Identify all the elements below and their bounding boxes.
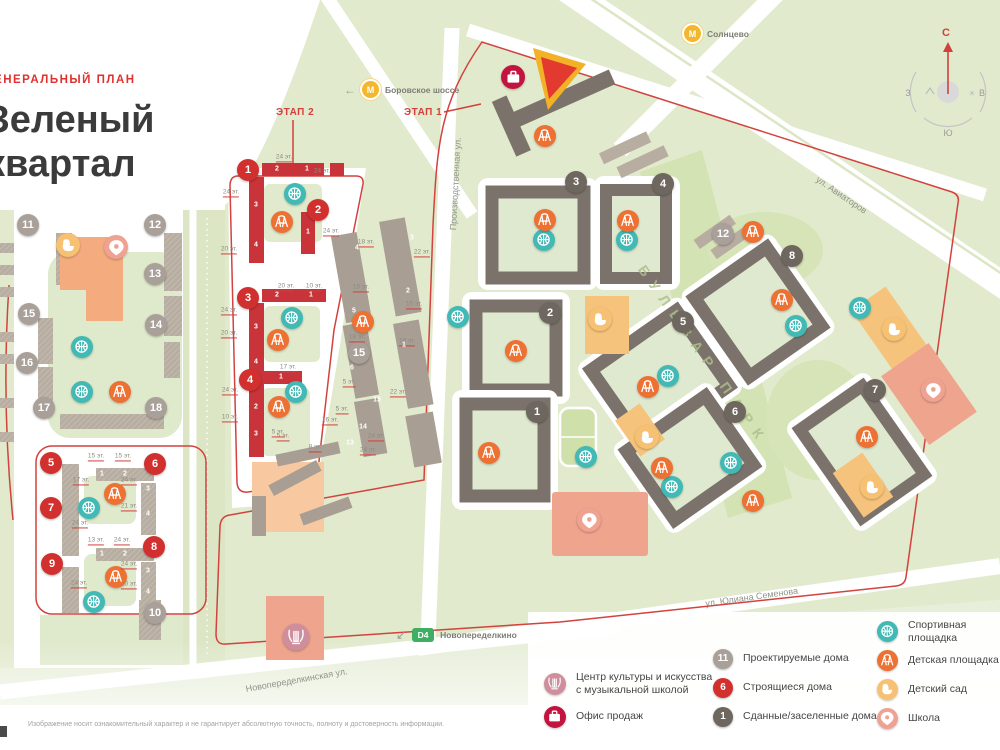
corps-number: 1	[57, 478, 61, 485]
play-icon[interactable]	[109, 381, 131, 403]
corps-number: 5	[352, 308, 356, 315]
legend-item: Центр культуры и искусства с музыкальной…	[544, 666, 712, 702]
play-icon[interactable]	[771, 289, 793, 311]
floor-label: 24 эт.	[360, 446, 376, 455]
building-badge-12[interactable]: 12	[144, 214, 166, 236]
d4-label: Новопеределкино	[440, 630, 517, 640]
legend-item: Детский сад	[877, 675, 1000, 704]
school-icon[interactable]	[921, 378, 945, 402]
floor-label: 5 эт.	[272, 428, 285, 437]
play-icon[interactable]	[856, 426, 878, 448]
legend-column-2: 11Проектируемые дома6Строящиеся дома1Сда…	[713, 644, 877, 731]
sport-icon	[877, 621, 898, 642]
corps-number: 2	[254, 404, 258, 411]
kinder-icon[interactable]	[882, 317, 906, 341]
floor-label: 5 эт.	[336, 405, 349, 414]
building-badge-6[interactable]: 6	[144, 453, 166, 475]
building-badge-7[interactable]: 7	[40, 497, 62, 519]
play-icon[interactable]	[478, 442, 500, 464]
metro-icon: М	[684, 25, 701, 42]
sport-icon[interactable]	[785, 315, 807, 337]
floor-label: 5 эт.	[343, 378, 356, 387]
sport-icon[interactable]	[616, 229, 638, 251]
corps-number: 1	[100, 551, 104, 558]
floor-label: 24 эт.	[114, 536, 130, 545]
building-badge-12[interactable]: 12	[712, 223, 734, 245]
sport-icon[interactable]	[78, 497, 100, 519]
corps-number: 6	[350, 365, 354, 372]
legend-column-3: Спортивная площадкаДетская площадкаДетск…	[877, 617, 1000, 733]
map-strip-trees	[183, 210, 225, 668]
arrow-left-icon: ←	[344, 84, 356, 96]
floor-label: 24 эт.	[368, 432, 384, 441]
building-badge-5[interactable]: 5	[672, 311, 694, 333]
building-badge-15[interactable]: 15	[348, 342, 370, 364]
floor-label: 17 эт.	[73, 476, 89, 485]
floor-label: 24 эт.	[71, 579, 87, 588]
floor-label: 24 эт.	[276, 153, 292, 162]
kinder-icon[interactable]	[588, 307, 612, 331]
metro-borovskoe-label: Боровское шоссе	[385, 85, 459, 95]
legend-label: Детский сад	[908, 683, 967, 696]
stage1-label: ЭТАП 1	[404, 107, 442, 118]
metro-borovskoe[interactable]: ← М Боровское шоссе	[344, 81, 459, 98]
corps-number: 3	[254, 431, 258, 438]
building-badge-2[interactable]: 2	[539, 302, 561, 324]
legend-label: Проектируемые дома	[743, 652, 849, 665]
floor-label: 24 эт.	[314, 167, 330, 176]
kinder-icon[interactable]	[860, 475, 884, 499]
play-icon[interactable]	[651, 457, 673, 479]
play-icon[interactable]	[742, 221, 764, 243]
sport-icon[interactable]	[71, 381, 93, 403]
legend-item: 11Проектируемые дома	[713, 644, 877, 673]
legend-item: Детская площадка	[877, 646, 1000, 675]
legend-item: 1Сданные/заселенные дома	[713, 702, 877, 731]
floor-label: 20 эт.	[221, 329, 237, 338]
corps-number: 2	[275, 166, 279, 173]
legend-item: Школа	[877, 704, 1000, 733]
floor-label: 22 эт.	[414, 248, 430, 257]
building-badge-8[interactable]: 8	[143, 536, 165, 558]
sport-icon[interactable]	[661, 476, 683, 498]
legend-badge-1: 1	[713, 707, 733, 727]
play-icon[interactable]	[617, 210, 639, 232]
corps-number: 1	[306, 229, 310, 236]
floor-label: 24 эт.	[223, 188, 239, 197]
sport-icon[interactable]	[285, 381, 307, 403]
school-icon[interactable]	[577, 508, 601, 532]
play-icon[interactable]	[505, 340, 527, 362]
corps-number: 1	[309, 292, 313, 299]
floor-label: 24 эт.	[72, 519, 88, 528]
sport-icon[interactable]	[657, 365, 679, 387]
corps-number: 15	[373, 397, 381, 404]
legend-item: Офис продаж	[544, 702, 712, 731]
metro-solntsevo-label: Солнцево	[707, 29, 749, 39]
corps-number: 4	[146, 511, 150, 518]
compass-east: В	[979, 88, 985, 98]
floor-label: 15 эт.	[353, 283, 369, 292]
floor-label: 20 эт.	[278, 282, 294, 291]
floor-label: 18 эт.	[358, 238, 374, 247]
office-icon[interactable]	[501, 65, 525, 89]
play-icon[interactable]	[534, 209, 556, 231]
legend-label: Сданные/заселенные дома	[743, 710, 877, 723]
compass-west: З	[905, 88, 910, 98]
legend-item: 6Строящиеся дома	[713, 673, 877, 702]
building-badge-4[interactable]: 4	[652, 173, 674, 195]
floor-label: 10 эт.	[306, 282, 322, 291]
corps-number: 1	[57, 585, 61, 592]
compass: С З В ☀ Ю	[902, 20, 988, 138]
corps-number: 2	[123, 551, 127, 558]
kinder-icon[interactable]	[635, 425, 659, 449]
play-icon[interactable]	[271, 211, 293, 233]
school-icon	[877, 708, 898, 729]
stage2-label: ЭТАП 2	[276, 107, 314, 118]
floor-label: 24 эт.	[121, 476, 137, 485]
sport-icon[interactable]	[83, 591, 105, 613]
floor-label: 8 эт.	[309, 443, 322, 452]
d4-station[interactable]: ↙ D4 Новопеределкино	[396, 628, 517, 642]
play-icon[interactable]	[637, 376, 659, 398]
legend-column-1: Центр культуры и искусства с музыкальной…	[544, 666, 712, 731]
metro-icon: М	[362, 81, 379, 98]
floor-label: 24 эт.	[121, 560, 137, 569]
building-badge-3[interactable]: 3	[565, 171, 587, 193]
play-icon	[877, 650, 898, 671]
building-badge-8[interactable]: 8	[781, 245, 803, 267]
corps-number: 3	[146, 568, 150, 575]
building-badge-5[interactable]: 5	[40, 452, 62, 474]
legend-label: Строящиеся дома	[743, 681, 832, 694]
corps-number: 3	[254, 202, 258, 209]
corps-number: 4	[254, 359, 258, 366]
corps-number: 3	[146, 486, 150, 493]
floor-label: 15 эт.	[115, 452, 131, 461]
floor-label: 18 эт.	[349, 333, 365, 342]
sun-icon: ☀	[968, 89, 975, 98]
metro-solntsevo[interactable]: М Солнцево	[684, 25, 749, 42]
floor-label: 24 эт.	[222, 386, 238, 395]
corps-number: 1	[402, 342, 406, 349]
floor-label: 24 эт.	[221, 306, 237, 315]
corps-number: 2	[406, 288, 410, 295]
arrow-downleft-icon: ↙	[396, 629, 406, 641]
building-badge-11[interactable]: 11	[17, 214, 39, 236]
building-badge-17[interactable]: 17	[33, 397, 55, 419]
building-badge-1[interactable]: 1	[526, 401, 548, 423]
office-icon	[544, 706, 566, 728]
corps-number: 3	[410, 235, 414, 242]
sport-icon[interactable]	[575, 446, 597, 468]
building-badge-3[interactable]: 3	[237, 287, 259, 309]
legend-label: Детская площадка	[908, 654, 999, 667]
floor-label: 15 эт.	[88, 452, 104, 461]
play-icon[interactable]	[534, 125, 556, 147]
sport-icon[interactable]	[71, 336, 93, 358]
legend-label: Школа	[908, 712, 940, 725]
floor-label: 16 эт.	[322, 416, 338, 425]
kinder-icon	[877, 679, 898, 700]
corps-number: 13	[346, 440, 354, 447]
floor-label: 22 эт.	[390, 388, 406, 397]
corps-number: 3	[254, 324, 258, 331]
corps-number: 4	[355, 245, 359, 252]
building-badge-2[interactable]: 2	[307, 199, 329, 221]
floor-label: 24 эт.	[323, 227, 339, 236]
corps-number: 1	[279, 374, 283, 381]
floor-label: 20 эт.	[121, 580, 137, 589]
compass-north: С	[942, 27, 950, 39]
building-badge-15[interactable]: 15	[18, 303, 40, 325]
floor-label: 10 эт.	[222, 413, 238, 422]
building-badge-4[interactable]: 4	[239, 369, 261, 391]
building-badge-14[interactable]: 14	[145, 314, 167, 336]
floor-label: 20 эт.	[221, 245, 237, 254]
corps-number: 1	[305, 166, 309, 173]
kinder-icon[interactable]	[56, 233, 80, 257]
corps-number: 2	[123, 471, 127, 478]
legend-label: Офис продаж	[576, 710, 643, 723]
d4-badge: D4	[412, 628, 434, 642]
floor-label: 15 эт.	[406, 300, 422, 309]
legend-badge-11: 11	[713, 649, 733, 669]
legend-label: Спортивная площадка	[908, 619, 1000, 644]
legend-badge-6: 6	[713, 678, 733, 698]
disclaimer-text: Изображение носит ознакомительный характ…	[28, 721, 444, 728]
corps-number: 4	[146, 589, 150, 596]
building-badge-13[interactable]: 13	[144, 263, 166, 285]
culture-icon	[544, 673, 566, 695]
corps-number: 4	[254, 242, 258, 249]
building-badge-1[interactable]: 1	[237, 159, 259, 181]
sport-icon[interactable]	[533, 229, 555, 251]
school-icon[interactable]	[104, 235, 128, 259]
corps-number: 1	[57, 524, 61, 531]
sport-icon[interactable]	[447, 306, 469, 328]
corps-number: 2	[275, 292, 279, 299]
building-badge-10[interactable]: 10	[144, 602, 166, 624]
logo-mark	[0, 726, 7, 737]
corps-number: 1	[100, 471, 104, 478]
building-badge-18[interactable]: 18	[145, 397, 167, 419]
legend-label: Центр культуры и искусства с музыкальной…	[576, 671, 712, 696]
corps-number: 14	[359, 424, 367, 431]
sport-icon[interactable]	[720, 452, 742, 474]
sport-icon[interactable]	[849, 297, 871, 319]
building-badge-16[interactable]: 16	[16, 352, 38, 374]
building-badge-7[interactable]: 7	[864, 379, 886, 401]
play-icon[interactable]	[267, 329, 289, 351]
floor-label: 21 эт.	[121, 502, 137, 511]
building-badge-6[interactable]: 6	[724, 401, 746, 423]
floor-label: 13 эт.	[88, 536, 104, 545]
compass-south: Ю	[943, 128, 952, 138]
legend-item: Спортивная площадка	[877, 617, 1000, 646]
building-badge-9[interactable]: 9	[41, 553, 63, 575]
sport-icon[interactable]	[284, 183, 306, 205]
play-icon[interactable]	[742, 490, 764, 512]
sport-icon[interactable]	[281, 307, 303, 329]
play-icon[interactable]	[268, 396, 290, 418]
floor-label: 17 эт.	[280, 363, 296, 372]
culture-icon[interactable]	[283, 624, 310, 651]
